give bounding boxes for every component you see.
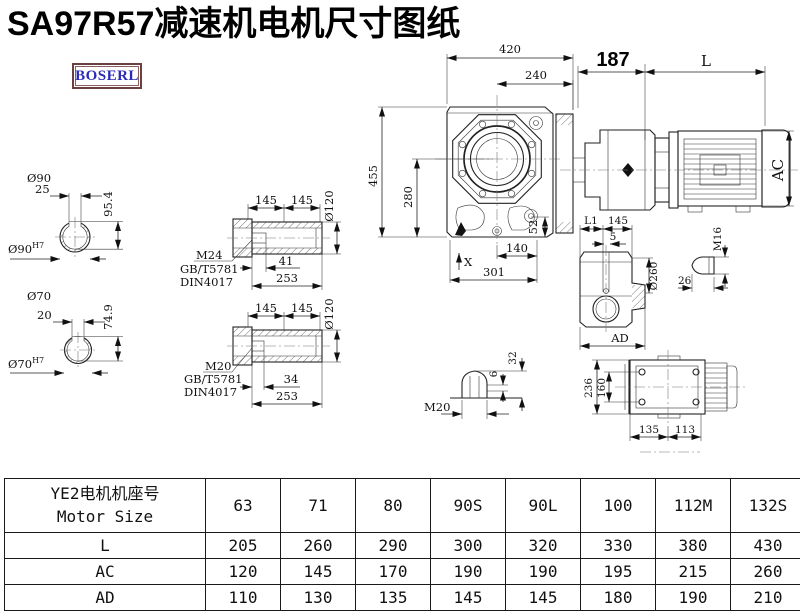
dim-301: 301 [483,265,505,279]
cell-AD-5: 180 [581,585,656,611]
dim-455: 455 [366,165,380,187]
label-gb-a: GB/T5781 [180,262,238,276]
plug-m20: M20 6 32 [424,351,527,419]
header-size-90s: 90S [431,479,506,533]
cell-AD-3: 145 [431,585,506,611]
cell-AC-4: 190 [506,559,581,585]
dim-253-b: 253 [276,389,298,403]
dim-145-c: 145 [255,301,277,315]
cell-AC-7: 260 [731,559,800,585]
cell-AD-7: 210 [731,585,800,611]
dim-41: 41 [279,254,294,268]
dim-20: 20 [37,308,52,322]
cell-AD-6: 190 [656,585,731,611]
dim-95-4: 95.4 [101,191,115,217]
dim-236: 236 [583,378,595,398]
cell-AC-1: 145 [281,559,356,585]
cell-AD-4: 145 [506,585,581,611]
header-motor-size-en: Motor Size [5,506,205,528]
dim-6: 6 [488,370,500,377]
dim-160: 160 [596,378,608,398]
dim-74-9: 74.9 [101,304,115,330]
label-din-a: DIN4017 [180,275,233,289]
label-m20-plug: M20 [424,400,450,414]
cell-AC-3: 190 [431,559,506,585]
label-m16: M16 [712,227,724,251]
dim-dia-120-a: Ø120 [322,190,336,221]
dim-145-b: 145 [291,193,313,207]
dim-dia-120-b: Ø120 [322,298,336,329]
motor-fins [684,144,756,194]
dim-34: 34 [284,372,299,386]
label-fit-70: Ø70H7 [8,356,44,371]
cell-L-5: 330 [581,533,656,559]
cell-L-1: 260 [281,533,356,559]
dim-145-a: 145 [255,193,277,207]
header-size-71: 71 [281,479,356,533]
reducer-top-view: 236 160 135 113 [583,350,745,452]
dim-26: 26 [678,275,692,287]
cell-AD-1: 130 [281,585,356,611]
cell-AC-6: 215 [656,559,731,585]
dim-L: L [701,52,711,70]
cell-L-4: 320 [506,533,581,559]
cell-AC-5: 195 [581,559,656,585]
header-motor-size-cn: YE2电机机座号 [5,483,205,505]
shaft-section-70: Ø70 20 74.9 Ø70H7 [8,289,123,373]
plug-m16: M16 26 [678,227,729,292]
hollow-shaft-m20: 145 145 Ø120 34 253 M20 GB/T5781 DIN4017 [184,298,341,408]
dim-AC: AC [769,159,787,182]
header-size-112m: 112M [656,479,731,533]
cell-AD-0: 110 [206,585,281,611]
cell-AD-2: 135 [356,585,431,611]
hollow-shaft-m24: 145 145 Ø120 41 253 M24 GB/T5781 DIN4017 [180,190,341,290]
label-fit-90: Ø90H7 [8,241,44,256]
cell-L-3: 300 [431,533,506,559]
header-motor-size: YE2电机机座号 Motor Size [5,479,206,533]
row-label-L: L [5,533,206,559]
dim-240: 240 [525,68,547,82]
drawing-page: SA97R57减速机电机尺寸图纸 BOSERL [0,0,800,613]
header-size-132s: 132S [731,479,800,533]
front-view: 420 240 455 280 52 X 140 301 [366,42,573,283]
label-din-b: DIN4017 [184,385,237,399]
cell-AC-2: 170 [356,559,431,585]
cell-L-6: 380 [656,533,731,559]
table-row-AD: AD 110 130 135 145 145 180 190 210 [5,585,800,611]
dim-dia-260: Ø260 [648,262,660,291]
motor-size-table: YE2电机机座号 Motor Size 63 71 80 90S 90L 100… [4,478,800,611]
table-row-L: L 205 260 290 300 320 330 380 430 [5,533,800,559]
dim-52: 52 [526,220,540,235]
label-m20: M20 [205,359,231,373]
drain-plug [455,222,466,236]
cell-AC-0: 120 [206,559,281,585]
table-header-row: YE2电机机座号 Motor Size 63 71 80 90S 90L 100… [5,479,800,533]
dim-280: 280 [401,186,415,208]
dim-AD: AD [610,331,629,345]
x-mark: X [464,255,473,269]
dim-253-a: 253 [276,271,298,285]
header-size-80: 80 [356,479,431,533]
header-size-63: 63 [206,479,281,533]
label-dia-70: Ø70 [27,289,51,303]
dim-420: 420 [499,42,521,56]
dim-140: 140 [506,241,528,255]
row-label-AC: AC [5,559,206,585]
technical-drawing: 420 240 455 280 52 X 140 301 [0,0,800,478]
motor-side-view: 187 L AC [556,49,798,233]
dim-5: 5 [610,231,617,243]
shaft-section-90: Ø90 25 95.4 Ø90H7 [8,171,123,259]
row-label-AD: AD [5,585,206,611]
dim-135: 135 [639,424,659,436]
dim-145-d: 145 [291,301,313,315]
table-row-AC: AC 120 145 170 190 190 195 215 260 [5,559,800,585]
dim-187: 187 [596,49,629,71]
dim-25: 25 [35,182,50,196]
dim-113: 113 [675,424,695,436]
cell-L-0: 205 [206,533,281,559]
dim-145-side: 145 [608,215,628,227]
cell-L-2: 290 [356,533,431,559]
dim-L1: L1 [584,215,598,227]
dim-32: 32 [507,351,519,364]
header-size-90l: 90L [506,479,581,533]
cell-L-7: 430 [731,533,800,559]
label-m24: M24 [196,248,222,262]
header-size-100: 100 [581,479,656,533]
label-gb-b: GB/T5781 [184,372,242,386]
reducer-side-view: L1 145 5 Ø260 AD [580,215,660,350]
